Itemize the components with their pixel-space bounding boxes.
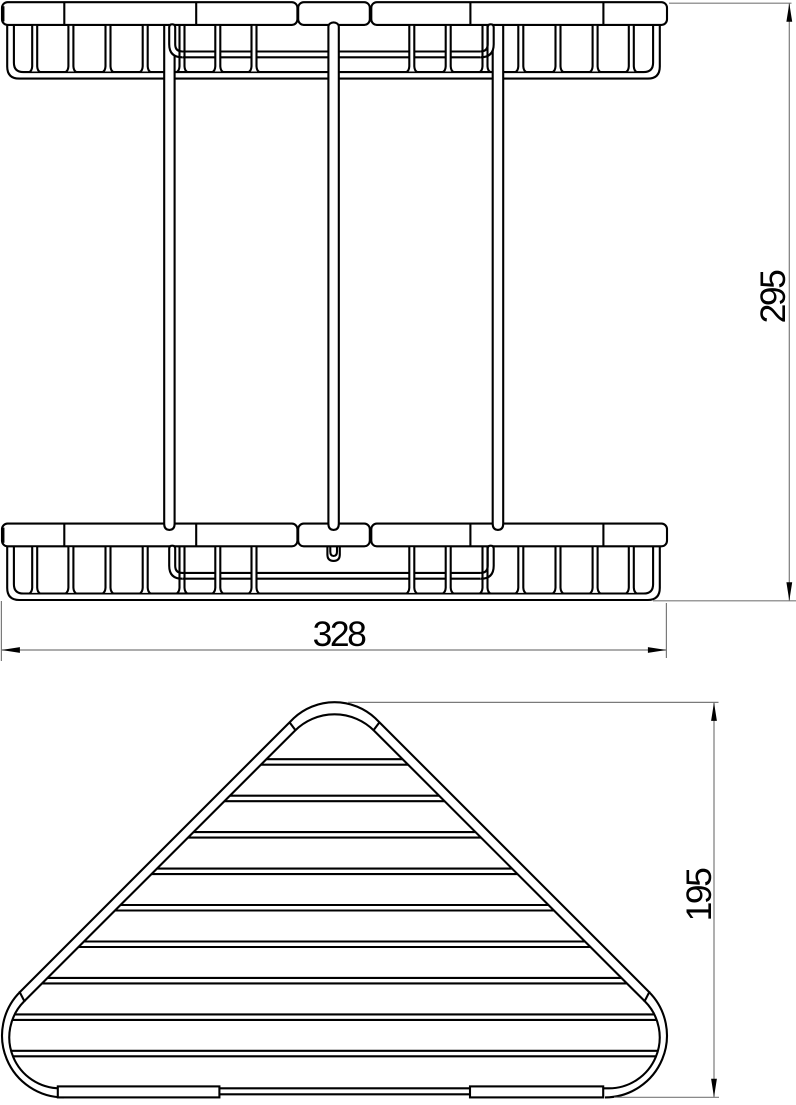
svg-text:195: 195	[679, 868, 719, 921]
svg-text:328: 328	[313, 614, 366, 654]
svg-text:295: 295	[753, 270, 793, 323]
